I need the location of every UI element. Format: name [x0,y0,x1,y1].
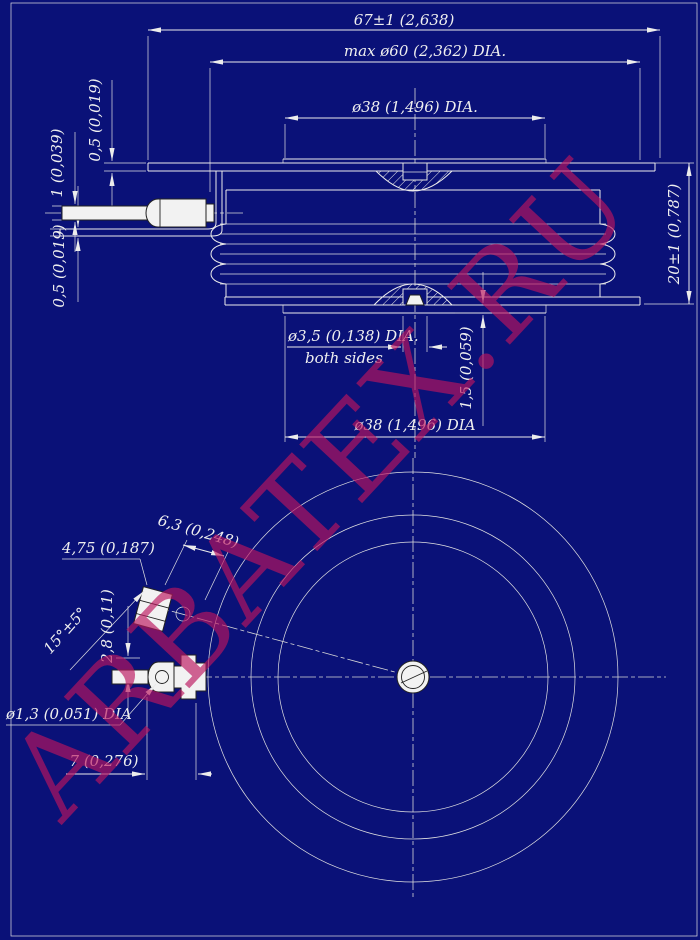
lead-strip [112,670,148,684]
dim-overall-width: 67±1 (2,638) [148,11,660,160]
drawing-frame [11,3,697,936]
top-center-recess [403,163,427,180]
lug-barrel [148,662,174,692]
lug-connector [174,655,206,699]
device-section [148,159,655,313]
dim-flange-thickness-bottom: 0,5 (0,019) [50,186,86,308]
dim-overall-width-label: 67±1 (2,638) [354,11,455,29]
dim-height-label: 20±1 (0,787) [665,184,683,286]
dim-pole-face-dia-top-label: ø38 (1,496) DIA. [351,98,478,116]
technical-drawing: 67±1 (2,638) max ø60 (2,362) DIA. ø38 (1… [0,0,700,940]
dim-lug-gap-label: 2,8 (0,11) [98,589,116,664]
dim-pole-face-dia-bottom-label: ø38 (1,496) DIA [353,416,475,434]
section-view: 67±1 (2,638) max ø60 (2,362) DIA. ø38 (1… [45,11,694,458]
dim-connector-length-label: 7 (0,276) [70,752,139,770]
dim-pole-face-step: 1,5 (0,059) [455,272,500,426]
dim-lug-offset: 4,75 (0,187) [61,539,155,585]
horizontal-lug [112,655,206,699]
dim-lug-angle-label: 15°±5° [40,604,91,658]
dim-lug-width: 6,3 (0,248) [156,511,241,600]
dim-lead-hole-dia-label: ø1,3 (0,051) DIA [5,705,132,723]
dim-lug-gap: 2,8 (0,11) [98,589,140,708]
plan-view: 4,75 (0,187) 6,3 (0,248) 15°±5° 2,8 (0,1… [5,458,666,898]
bellows [211,224,615,284]
dim-center-hole-dia-label: ø3,5 (0,138) DIA. [287,327,419,345]
dim-pole-face-step-label: 1,5 (0,059) [457,326,475,409]
dim-max-body-dia-label: max ø60 (2,362) DIA. [344,42,506,60]
gate-lead-strip [62,206,150,220]
dim-flange-thickness-bottom-label: 0,5 (0,019) [50,224,68,307]
gate-connector-plug [206,204,214,222]
dim-center-hole: ø3,5 (0,138) DIA. both sides [287,316,447,367]
dim-lead-thickness-label: 1 (0,039) [48,128,66,197]
center-hub [397,661,429,693]
dim-flange-thickness-top: 0,5 (0,019) [86,78,146,212]
dim-lead-hole: ø1,3 (0,051) DIA [5,684,156,725]
drawing-page: 67±1 (2,638) max ø60 (2,362) DIA. ø38 (1… [0,0,700,940]
dim-center-hole-note-label: both sides [305,349,383,367]
gate-connector-barrel [146,199,206,227]
dim-height: 20±1 (0,787) [644,163,694,304]
dim-lug-offset-label: 4,75 (0,187) [61,539,155,557]
dim-lug-width-label: 6,3 (0,248) [156,511,241,551]
dim-flange-thickness-top-label: 0,5 (0,019) [86,78,104,161]
